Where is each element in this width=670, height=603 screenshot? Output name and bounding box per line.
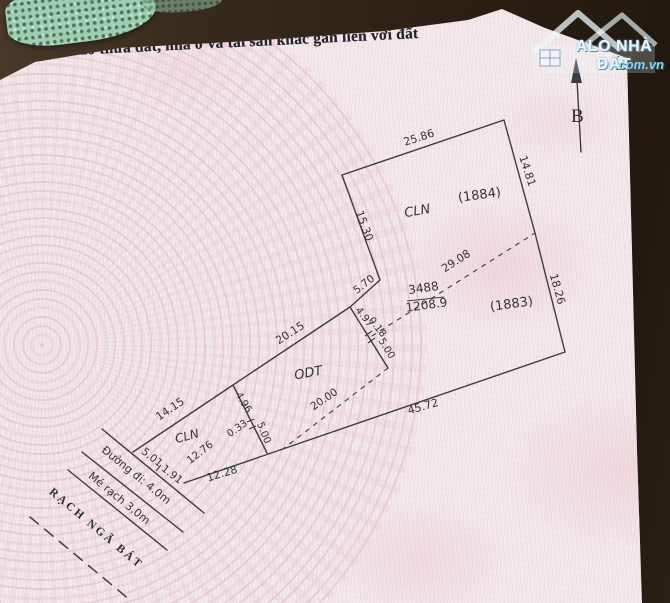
canal-name: RẠCH NGÃ BÁT [47,484,147,571]
len-1-91: 1.91 [159,463,185,487]
inner-boundary-29-08 [372,233,535,336]
parcel-south-boundary [184,352,565,483]
north-label: B [571,106,584,127]
plot-diagram: B 25.8614.8115.30CLN(1884)5.704.970.185.… [0,0,670,603]
len-5-70: 5.70 [351,273,377,297]
len-20-00: 20.00 [309,386,341,413]
len-5-00-east: 5.00 [376,336,397,361]
len-nw: 15.30 [353,209,376,243]
len-4-96: 4.96 [233,390,254,415]
parcel-type-cln-upper: CLN [403,202,432,221]
len-se: 18.26 [547,272,568,306]
crochet-tablecloth [3,0,159,51]
diagram-labels: 25.8614.8115.30CLN(1884)5.704.970.185.00… [47,127,568,572]
watermark-logo: ALO NHÀ ĐẤT .com.vn [528,0,670,78]
canal-dashed-line [30,517,130,600]
certificate-page: III. Sơ đồ thửa đất, nhà ở và tài sản kh… [0,0,670,603]
plot-area: 1208.9 [405,295,449,315]
len-0-33: 0.33 [225,418,250,440]
photo-of-land-certificate: III. Sơ đồ thửa đất, nhà ở và tài sản kh… [0,0,670,603]
len-ne: 14.81 [516,154,538,188]
parcel-id-1884: (1884) [457,185,502,206]
parcel-type-odt: ODT [293,364,324,384]
plot-number: 3488 [407,279,439,297]
len-20-15: 20.15 [273,319,306,347]
parcel-id-1883: (1883) [489,294,534,315]
watermark-domain: .com.vn [615,57,664,72]
len-12-28: 12.28 [205,463,239,485]
len-45-72: 45.72 [406,396,440,417]
len-29-08: 29.08 [439,247,472,275]
parcel-type-cln-lower: CLN [174,426,201,446]
